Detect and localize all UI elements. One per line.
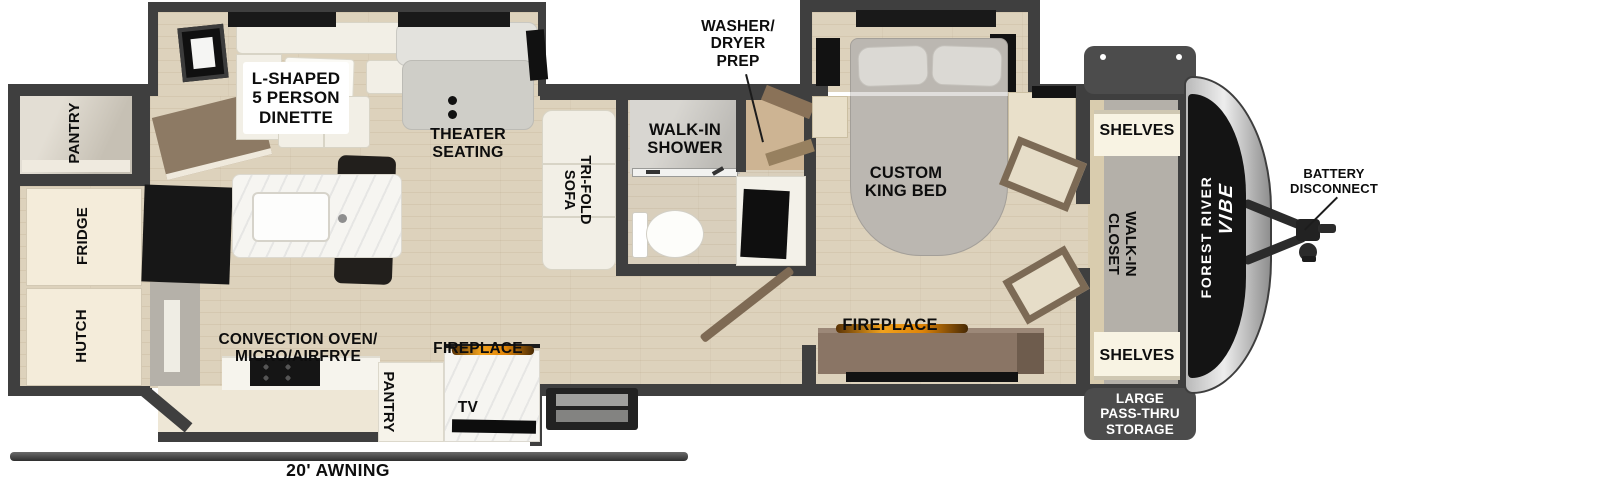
label-washer-dryer-prep: WASHER/ DRYER PREP (694, 16, 782, 72)
label-walk-in-shower: WALK-IN SHOWER (630, 119, 740, 159)
label-pantry-door-side: PANTRY (380, 367, 396, 437)
theater-cupholder-2 (448, 110, 457, 119)
label-dinette: L-SHAPED 5 PERSON DINETTE (243, 62, 349, 134)
label-hutch: HUTCH (74, 301, 90, 371)
label-living-fireplace: FIREPLACE (426, 340, 530, 357)
hitch (1246, 192, 1340, 272)
label-custom-king-bed: CUSTOM KING BED (844, 163, 968, 201)
theater-seat-cushion (402, 60, 534, 130)
entertainment-cabinet (141, 184, 232, 284)
rear-cabinet-door (164, 300, 180, 372)
label-bedroom-fireplace: FIREPLACE (838, 316, 942, 334)
brand-vibe: VIBE (1216, 181, 1237, 236)
brand-logo: FOREST RIVER VIBE (1194, 162, 1242, 312)
pass-thru-storage-bottom: LARGE PASS-THRU STORAGE (1084, 388, 1196, 440)
label-pantry-rear: PANTRY (67, 98, 83, 168)
dinette-slide-window-top-1 (228, 12, 336, 27)
label-fridge: FRIDGE (75, 201, 91, 271)
entry-step-2 (556, 410, 628, 422)
window-pane (190, 37, 215, 69)
bedroom-bottom-window (846, 372, 1018, 382)
label-tri-fold-sofa: TRI-FOLD SOFA (559, 152, 595, 228)
tv-screen (452, 419, 536, 433)
theater-cupholder-1 (448, 96, 457, 105)
shower-handle-1 (646, 170, 660, 174)
label-walk-in-closet: WALK-IN CLOSET (1103, 203, 1139, 285)
dinette-slide-window-left (177, 24, 228, 83)
label-shelves-top: SHELVES (1094, 121, 1180, 141)
toilet-bowl (646, 210, 704, 258)
storage-screw-1 (1100, 54, 1106, 60)
floorplan-canvas: LARGE PASS-THRU STORAGE FOREST RIVER VIB… (0, 0, 1600, 488)
bedroom-top-window (1032, 86, 1076, 98)
pass-thru-storage-label: LARGE PASS-THRU STORAGE (1084, 388, 1196, 440)
vanity-mirror (740, 189, 789, 259)
bedroom-slide-window-top (856, 10, 996, 27)
bedroom-slide-window-left (816, 38, 840, 86)
brand-forest-river: FOREST RIVER (1199, 176, 1215, 299)
bedroom-dresser (818, 328, 1044, 374)
label-battery-disconnect: BATTERY DISCONNECT (1282, 167, 1386, 197)
label-theater-seating: THEATER SEATING (406, 125, 530, 163)
label-shelves-bottom: SHELVES (1094, 346, 1180, 366)
storage-screw-2 (1176, 54, 1182, 60)
entry-step-1 (556, 394, 628, 406)
label-awning: 20' AWNING (256, 460, 420, 482)
label-tv: TV (448, 400, 488, 416)
island-faucet (338, 214, 347, 223)
nightstand (812, 96, 848, 138)
bed-pillow-left (857, 45, 928, 87)
bed-fold-line (850, 92, 1008, 96)
pass-thru-storage-top (1084, 46, 1196, 94)
label-convection-oven: CONVECTION OVEN/ MICRO/AIRFRYE (210, 329, 386, 367)
island-sink (252, 192, 330, 242)
bedroom-closet-wall-upper (1076, 84, 1090, 204)
dinette-slide-window-top-2 (398, 12, 510, 27)
bed-pillow-right (931, 45, 1002, 87)
